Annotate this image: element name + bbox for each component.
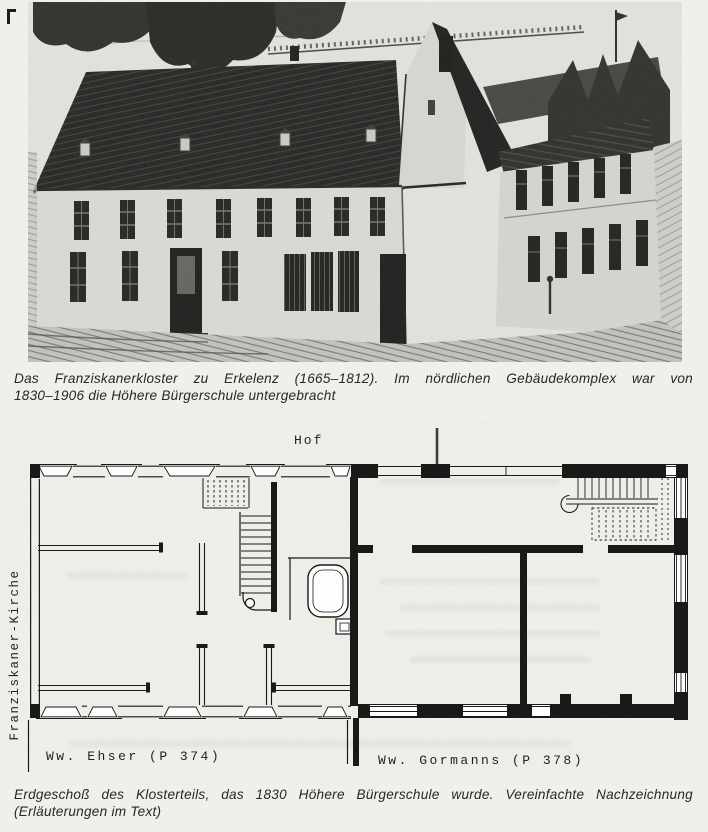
photo-caption-line-2: 1830–1906 die Höhere Bürgerschule unterg… xyxy=(14,387,693,404)
scan-artifact xyxy=(8,9,16,12)
photo-caption: Das Franziskanerkloster zu Erkelenz (166… xyxy=(14,370,693,404)
plan-caption-line-2: (Erläuterungen im Text) xyxy=(14,803,693,820)
photo-grain xyxy=(28,2,682,362)
plan-caption-line-1: Erdgeschoß des Klosterteils, das 1830 Hö… xyxy=(14,786,693,803)
scanned-book-page: Das Franziskanerkloster zu Erkelenz (166… xyxy=(0,0,708,832)
plan-caption: Erdgeschoß des Klosterteils, das 1830 Hö… xyxy=(14,786,693,820)
plan-grain xyxy=(0,420,708,785)
monastery-engraving xyxy=(28,2,682,362)
floor-plan: Hof Franziskaner-Kirche Ww. Ehser (P 374… xyxy=(0,420,708,785)
photo-caption-line-1: Das Franziskanerkloster zu Erkelenz (166… xyxy=(14,370,693,387)
